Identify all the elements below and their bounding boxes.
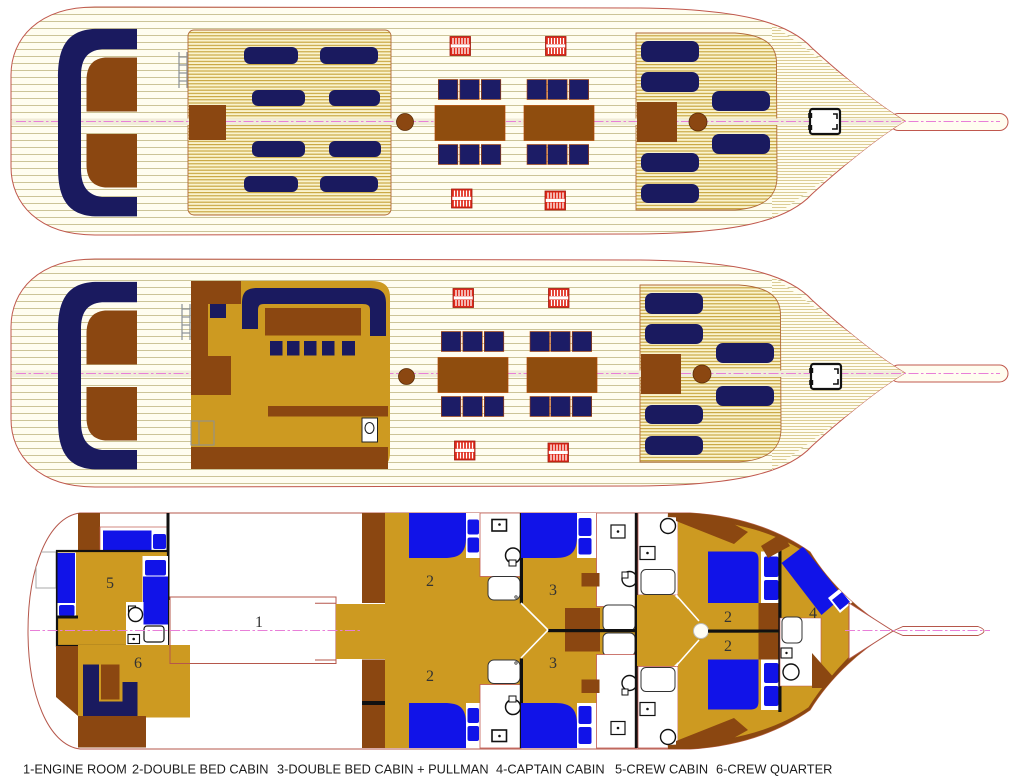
svg-text:1: 1 <box>255 614 263 631</box>
svg-text:2: 2 <box>724 638 732 655</box>
svg-text:2: 2 <box>426 573 434 590</box>
svg-text:3: 3 <box>549 582 557 599</box>
svg-text:2: 2 <box>724 609 732 626</box>
svg-text:2-DOUBLE BED CABIN: 2-DOUBLE BED CABIN <box>132 762 269 777</box>
svg-text:6-CREW QUARTER: 6-CREW QUARTER <box>716 762 832 777</box>
svg-text:3-DOUBLE BED CABIN + PULLMAN: 3-DOUBLE BED CABIN + PULLMAN <box>277 762 489 777</box>
svg-text:2: 2 <box>426 668 434 685</box>
svg-text:4-CAPTAIN CABIN: 4-CAPTAIN CABIN <box>496 762 605 777</box>
svg-text:6: 6 <box>134 655 142 672</box>
svg-text:3: 3 <box>549 655 557 672</box>
svg-text:5-CREW CABIN: 5-CREW CABIN <box>615 762 708 777</box>
svg-text:5: 5 <box>106 575 114 592</box>
svg-text:4: 4 <box>809 605 817 622</box>
svg-text:1-ENGINE ROOM: 1-ENGINE ROOM <box>23 762 127 777</box>
